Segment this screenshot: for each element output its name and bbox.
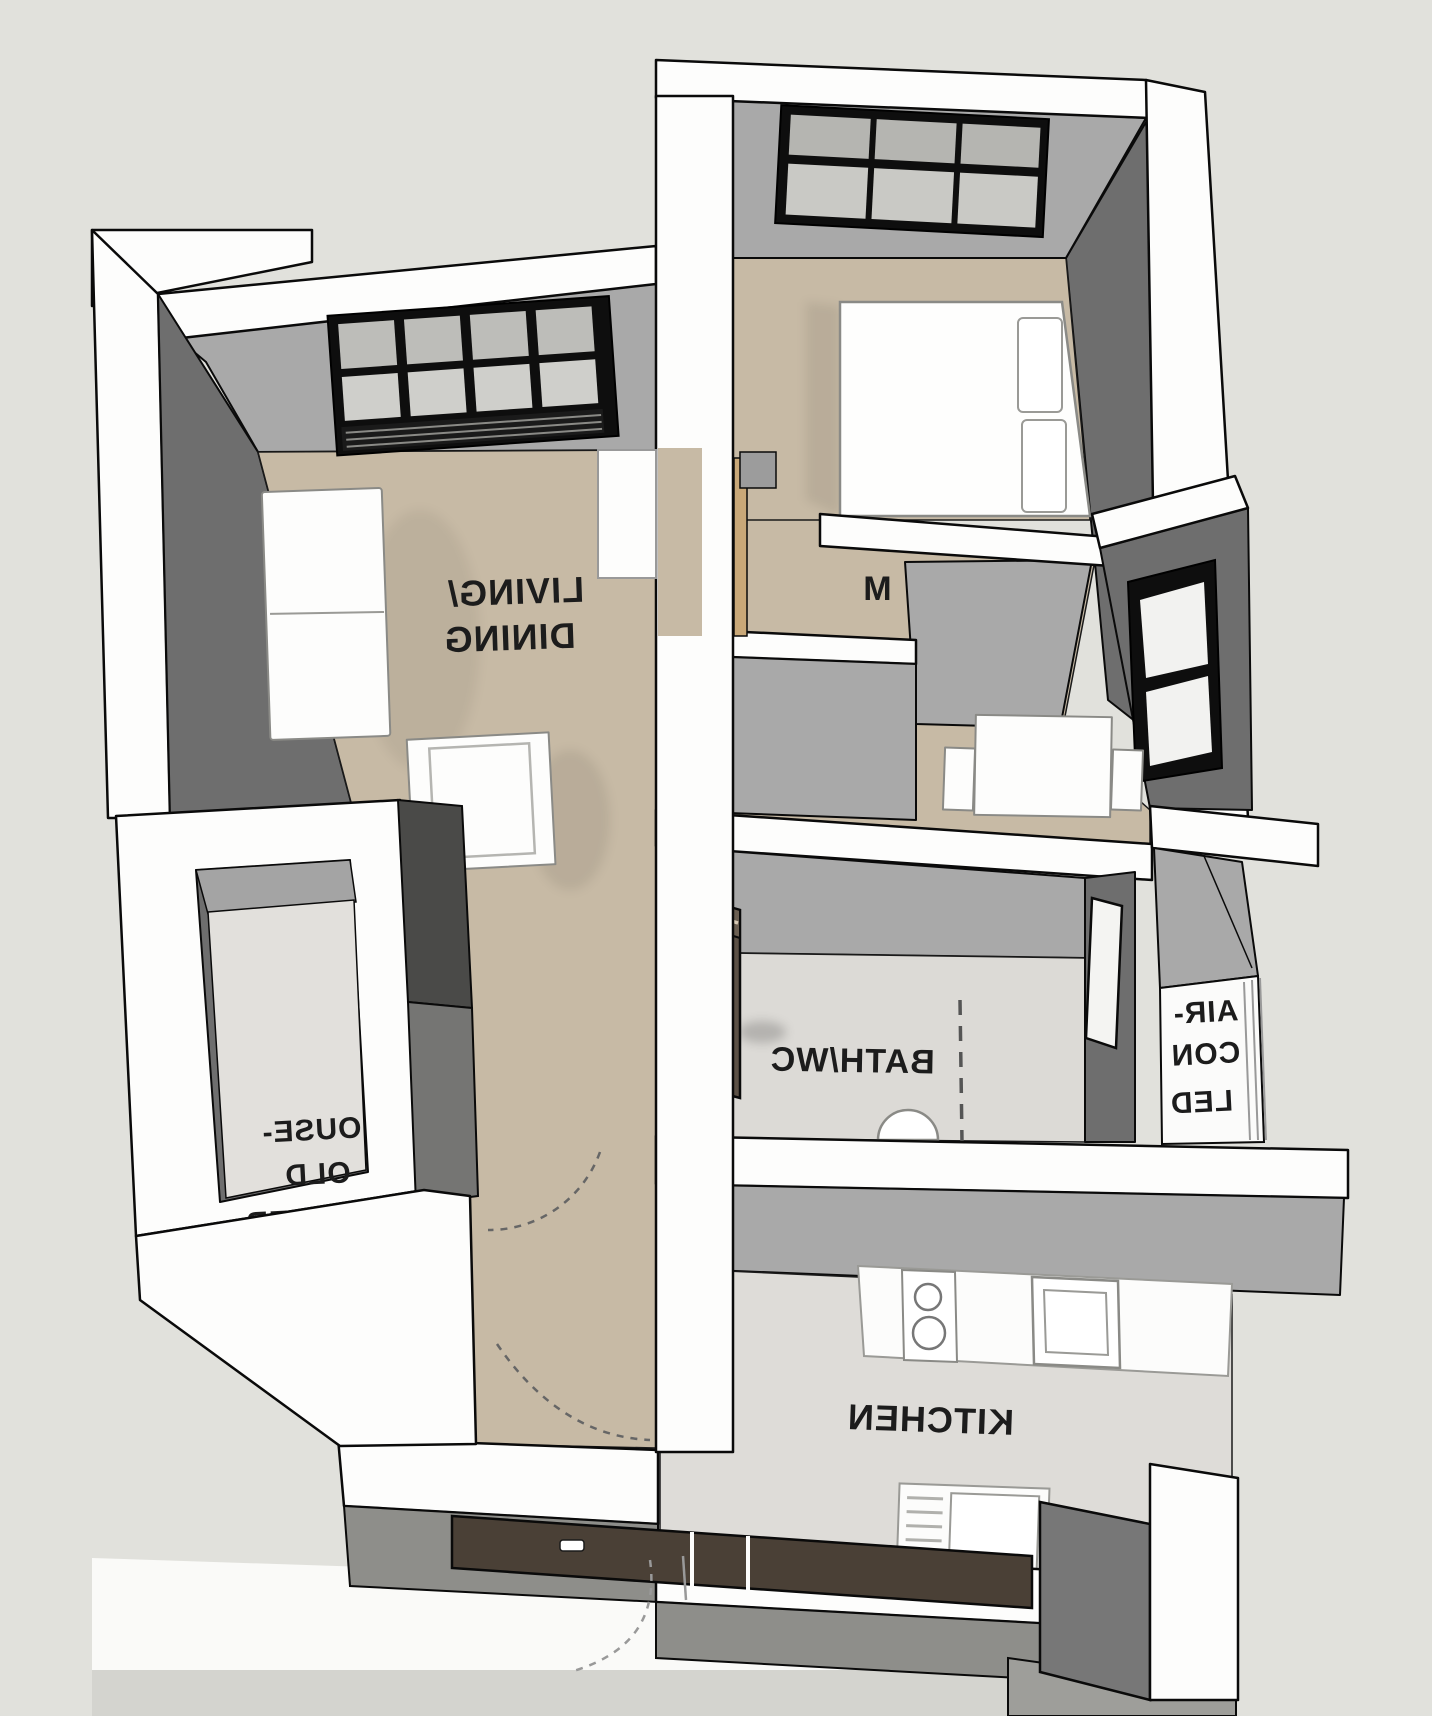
chair (1111, 749, 1143, 810)
window-pane (342, 373, 401, 421)
sliding-panel (598, 450, 656, 578)
aircon-label-line2: CON (1170, 1036, 1241, 1073)
rack-rung (907, 1498, 943, 1499)
southeast-corner-wall (1150, 1464, 1238, 1700)
cabinet-shadow (738, 1021, 786, 1043)
window-pane (871, 168, 954, 223)
bedroom-window (775, 105, 1049, 237)
window-pane (408, 368, 467, 416)
window-pane (474, 364, 533, 412)
window-pane (536, 306, 595, 355)
shelter-label-line2: OLD (284, 1156, 352, 1192)
pillow (1018, 318, 1062, 412)
bath-label: BATH/WC (769, 1041, 935, 1082)
shelter-label-line1: OUSE- (261, 1111, 363, 1149)
shelter-east-face (408, 1002, 478, 1204)
living-window (328, 296, 619, 455)
chair (943, 747, 975, 810)
shelter-door-open (398, 800, 472, 1008)
corridor-cabinet (740, 452, 776, 488)
window-pane (404, 316, 463, 365)
bath-slit-window (1086, 898, 1122, 1048)
corridor-window-pane (1146, 676, 1212, 766)
sofa (262, 488, 391, 740)
window-pane (961, 124, 1041, 168)
refrigerator (1040, 1502, 1150, 1700)
central-wall-band (656, 96, 733, 1452)
ledge-wall-face (1154, 848, 1258, 988)
nook-table (974, 715, 1112, 817)
3d-viewport[interactable]: LIVING/ DINING M (0, 0, 1432, 1716)
window-pane (957, 173, 1038, 228)
window-pane (786, 164, 869, 219)
bed-shadow (806, 302, 840, 516)
door-handle (560, 1540, 584, 1551)
bedroom-label-partial: M (862, 570, 891, 608)
rack-rung (906, 1540, 942, 1541)
window-pane (470, 311, 529, 360)
aircon-label-line3: LED (1169, 1084, 1234, 1120)
floorplan-3d-stage: LIVING/ DINING M (0, 0, 1432, 1716)
pillow (1022, 420, 1066, 512)
burner (915, 1284, 941, 1310)
burner (913, 1317, 945, 1349)
shelter-floor (208, 900, 366, 1198)
window-pane (338, 320, 397, 369)
window-pane (789, 115, 871, 159)
bedroom-doorway-gap (658, 448, 702, 636)
living-dining-label-line2: DINING (443, 615, 576, 661)
rack-rung (907, 1512, 943, 1513)
window-pane (875, 119, 957, 163)
aircon-label-line1: AIR- (1172, 994, 1239, 1030)
living-dining-label-line1: LIVING/ (446, 569, 584, 615)
rack-rung (906, 1526, 942, 1527)
kitchen-label: KITCHEN (846, 1396, 1014, 1443)
nook-wall-block (905, 560, 1092, 728)
window-pane (539, 359, 598, 407)
ground-strip (92, 1670, 1008, 1716)
